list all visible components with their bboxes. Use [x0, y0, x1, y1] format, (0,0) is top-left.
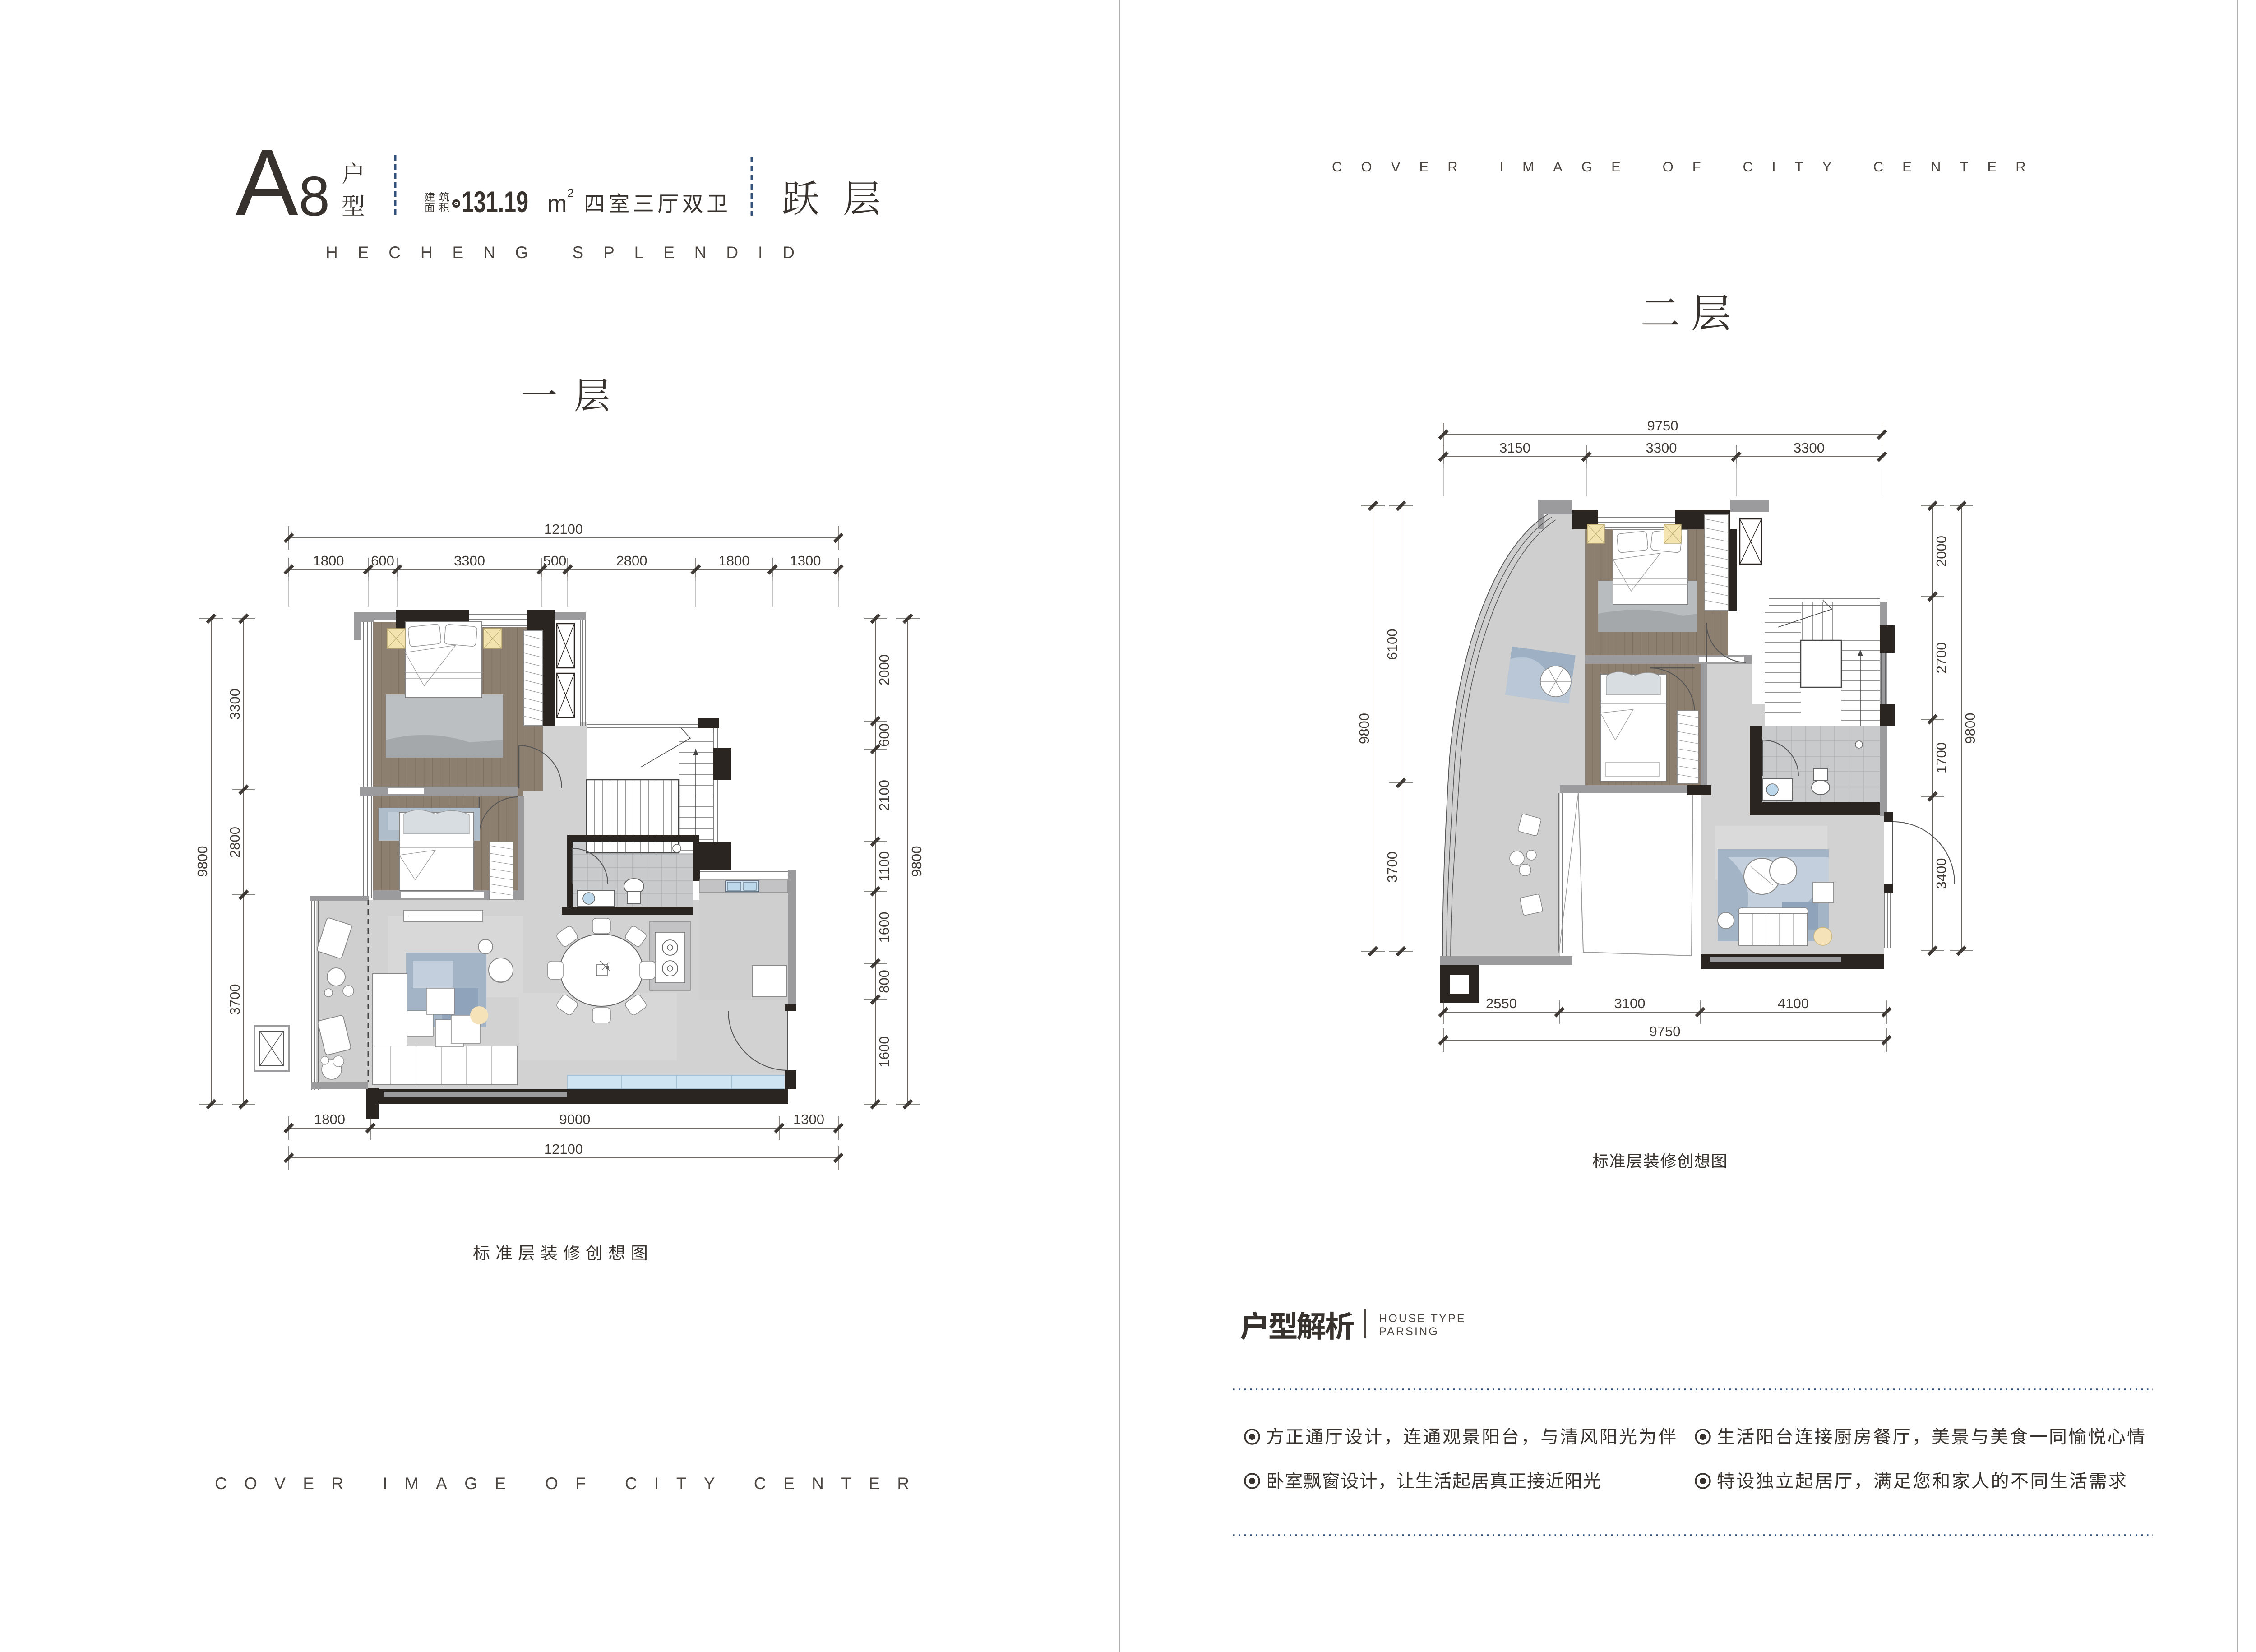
svg-text:2000: 2000 [876, 654, 892, 685]
svg-text:3300: 3300 [454, 553, 485, 569]
svg-text:6100: 6100 [1384, 629, 1400, 660]
svg-text:1800: 1800 [313, 553, 344, 569]
svg-text:9800: 9800 [1962, 713, 1978, 744]
svg-text:4100: 4100 [1778, 995, 1809, 1011]
svg-text:A: A [236, 130, 298, 235]
svg-text:3300: 3300 [1646, 440, 1677, 456]
svg-text:1700: 1700 [1933, 742, 1949, 773]
svg-text:12100: 12100 [544, 1141, 583, 1157]
svg-text:1300: 1300 [790, 553, 821, 569]
svg-text:2800: 2800 [227, 827, 243, 858]
svg-text:1100: 1100 [876, 851, 892, 882]
svg-text:3400: 3400 [1933, 858, 1949, 889]
svg-text:2700: 2700 [1933, 643, 1949, 674]
svg-text:3300: 3300 [1794, 440, 1825, 456]
svg-text:2: 2 [567, 186, 574, 200]
svg-text:3150: 3150 [1499, 440, 1530, 456]
svg-text:3700: 3700 [1384, 851, 1400, 883]
svg-text:9800: 9800 [194, 846, 210, 877]
svg-text:HOUSE TYPE: HOUSE TYPE [1379, 1312, 1466, 1325]
svg-text:9800: 9800 [1356, 713, 1372, 744]
svg-text:1600: 1600 [876, 912, 892, 943]
svg-text:2550: 2550 [1486, 995, 1517, 1011]
svg-text:3300: 3300 [227, 689, 243, 720]
svg-text:600: 600 [371, 553, 394, 569]
svg-text:1300: 1300 [793, 1111, 824, 1127]
svg-text:12100: 12100 [544, 521, 583, 537]
svg-text:HECHENG SPLENDID: HECHENG SPLENDID [326, 243, 814, 262]
svg-text:1600: 1600 [876, 1037, 892, 1068]
svg-text:800: 800 [876, 970, 892, 993]
svg-text:2800: 2800 [616, 553, 647, 569]
svg-text:COVER IMAGE OF CITY CENTER: COVER IMAGE OF CITY CENTER [215, 1474, 926, 1493]
svg-text:1800: 1800 [314, 1111, 345, 1127]
svg-text:9750: 9750 [1647, 418, 1678, 434]
svg-text:COVER IMAGE OF CITY CENTER: COVER IMAGE OF CITY CENTER [1332, 159, 2045, 175]
svg-text:8: 8 [299, 166, 330, 228]
svg-text:131.19: 131.19 [462, 185, 528, 218]
svg-text:500: 500 [543, 553, 567, 569]
svg-text:9800: 9800 [909, 846, 925, 877]
svg-text:1800: 1800 [719, 553, 750, 569]
svg-text:3100: 3100 [1614, 995, 1646, 1011]
svg-text:2100: 2100 [876, 780, 892, 811]
svg-text:600: 600 [876, 723, 892, 747]
svg-text:9750: 9750 [1650, 1023, 1681, 1039]
svg-text:2000: 2000 [1933, 536, 1949, 567]
svg-text:3700: 3700 [227, 984, 243, 1015]
svg-text:PARSING: PARSING [1379, 1325, 1439, 1338]
svg-text:9000: 9000 [559, 1111, 591, 1127]
svg-text:m: m [547, 191, 567, 217]
